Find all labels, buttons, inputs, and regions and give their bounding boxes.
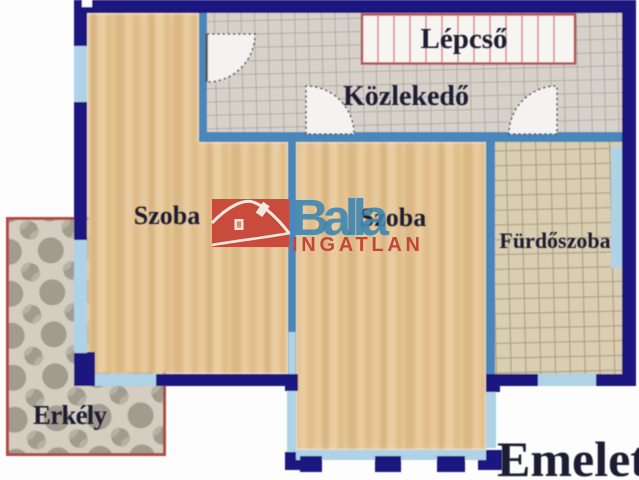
svg-text:Emelet: Emelet [497,431,639,480]
svg-text:Közlekedő: Közlekedő [343,81,469,112]
svg-text:Fürdőszoba: Fürdőszoba [499,228,610,253]
svg-text:Lépcső: Lépcső [421,23,508,55]
svg-text:INGATLAN: INGATLAN [292,234,422,256]
svg-text:Szoba: Szoba [134,201,200,230]
svg-text:Erkély: Erkély [33,400,108,430]
